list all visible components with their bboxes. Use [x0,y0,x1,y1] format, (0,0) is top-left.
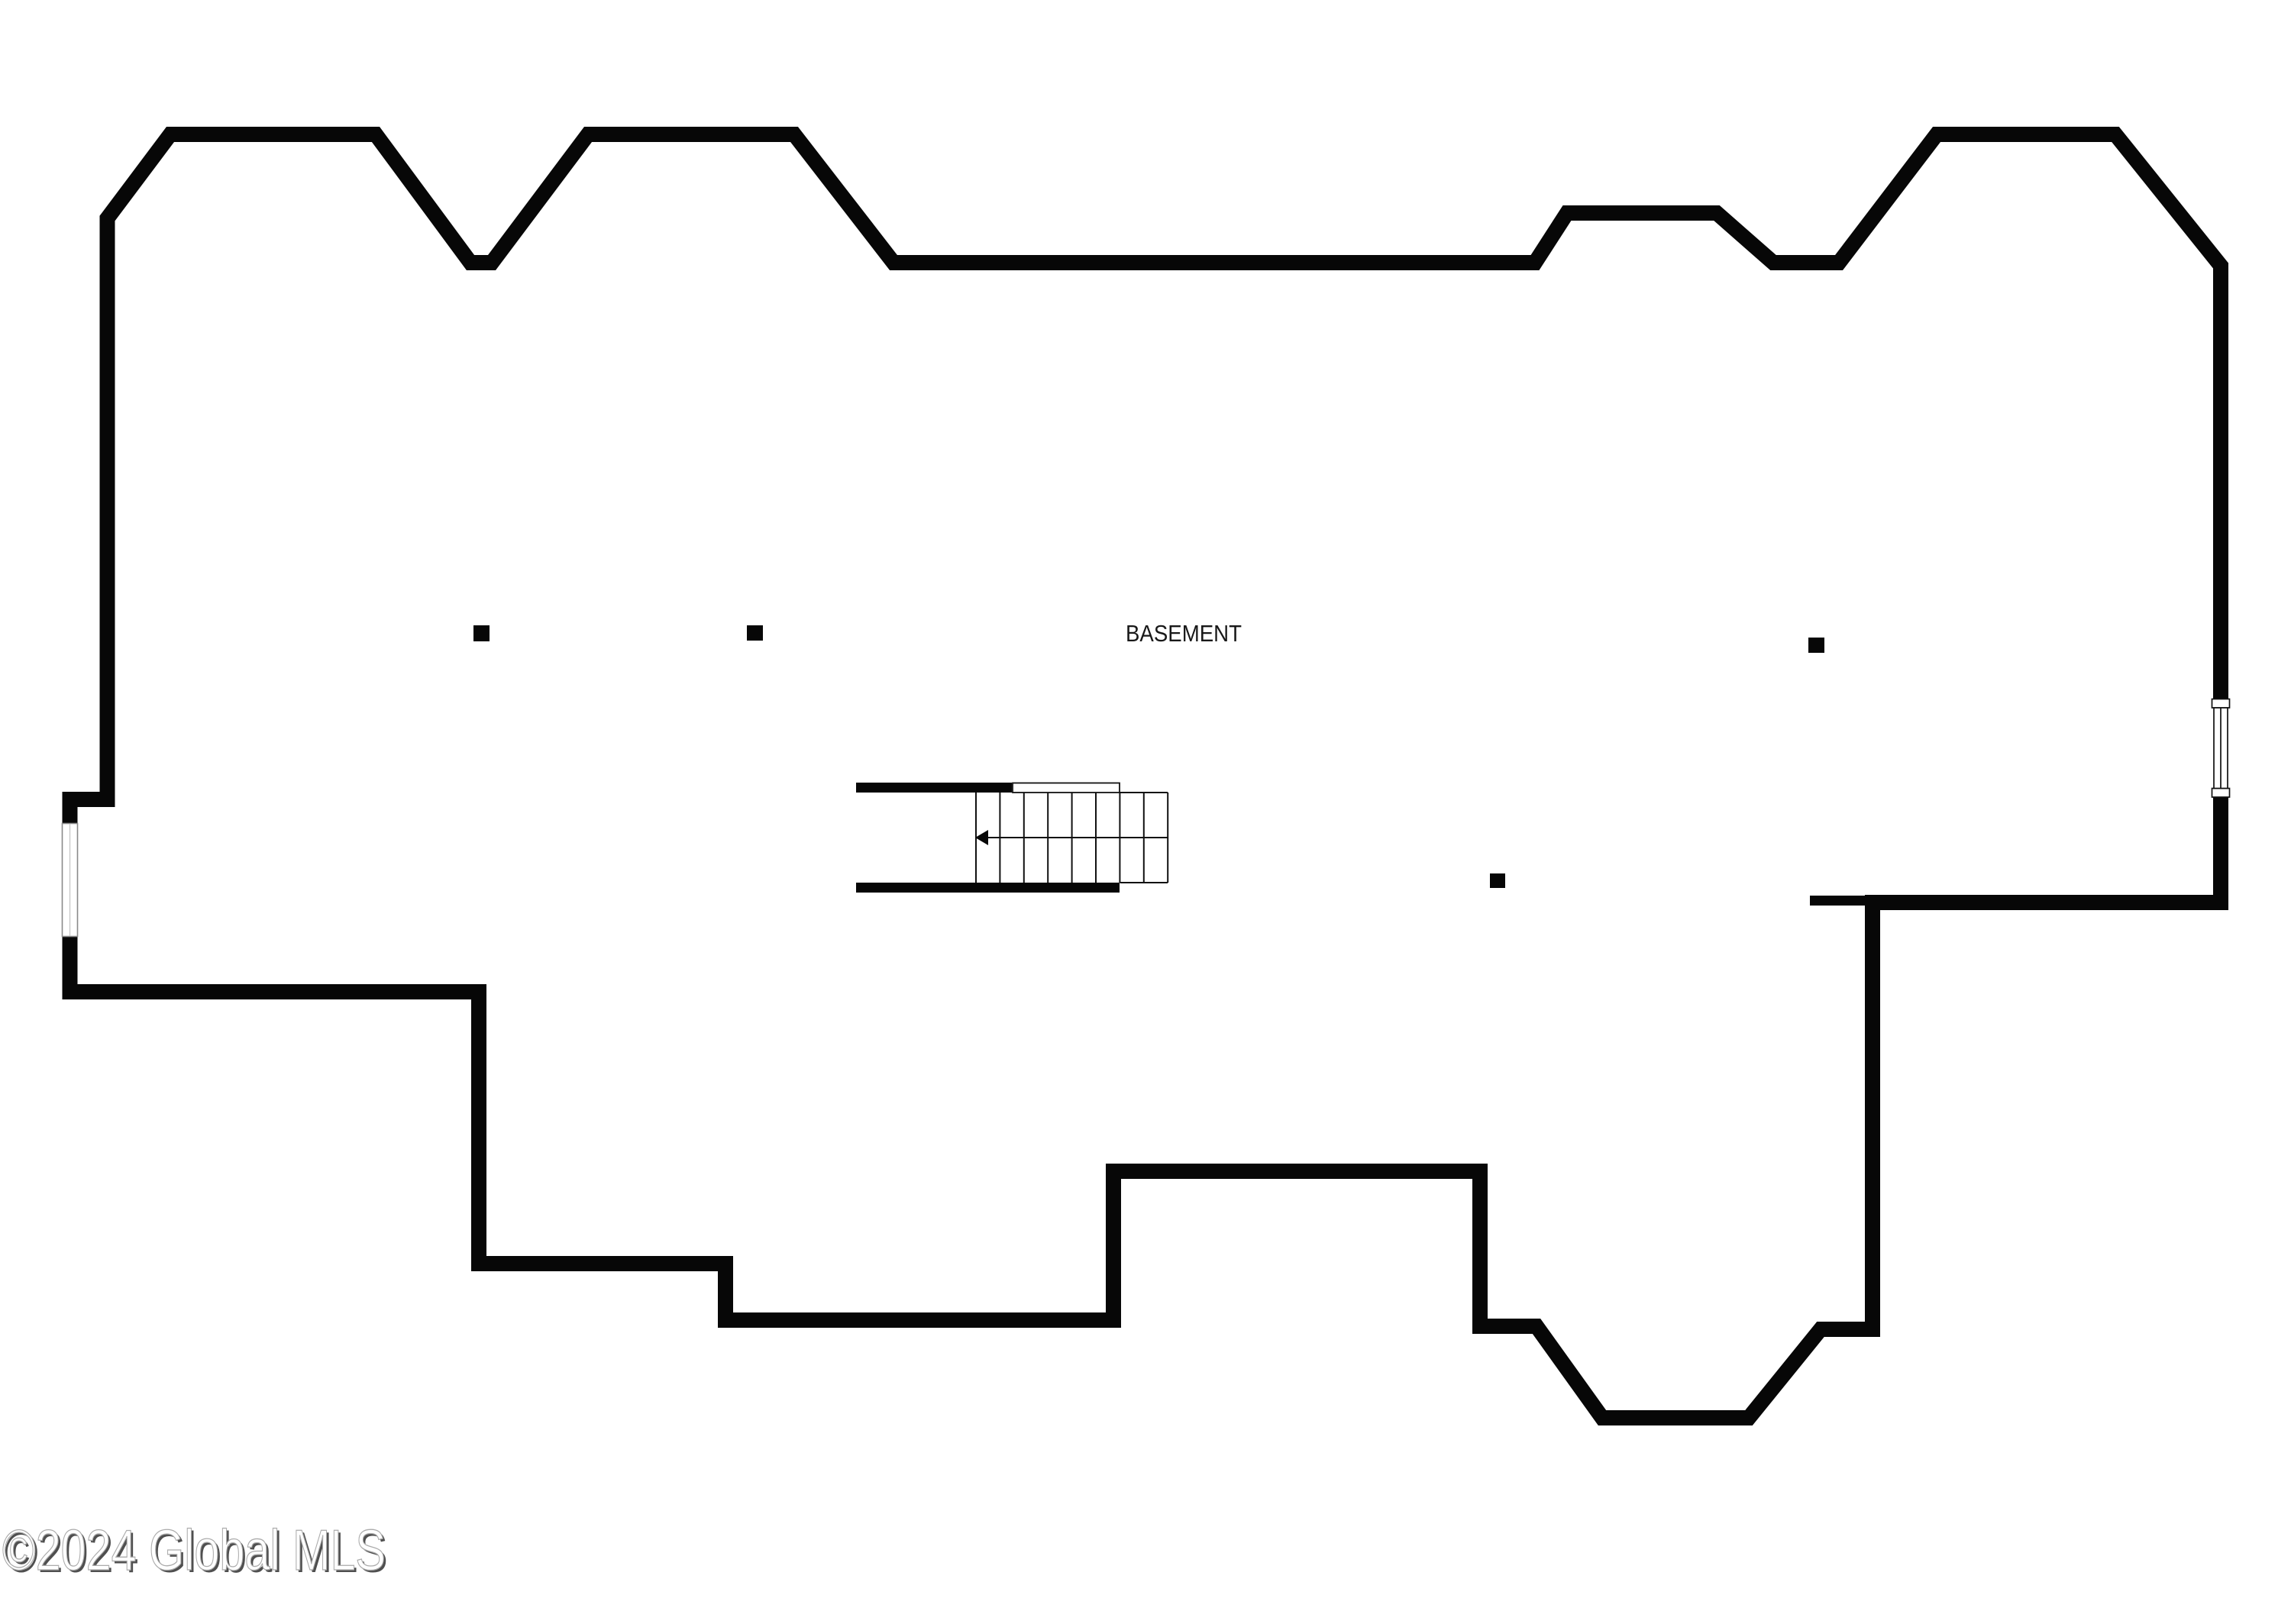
svg-text:©2024 Global MLS: ©2024 Global MLS [2,1518,386,1582]
svg-text:BASEMENT: BASEMENT [1126,620,1242,647]
